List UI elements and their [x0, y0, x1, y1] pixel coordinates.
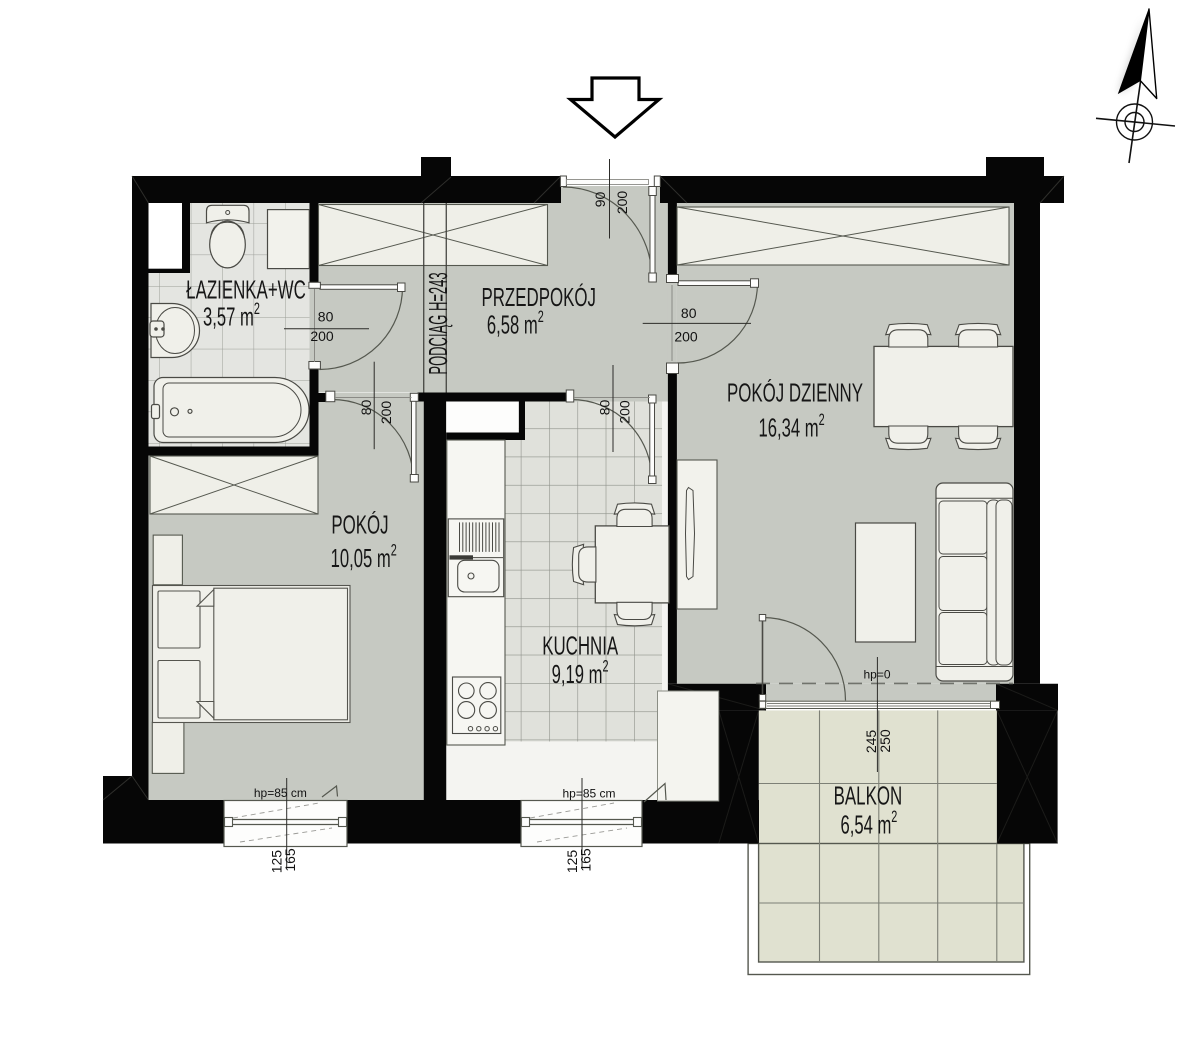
svg-text:POKÓJ: POKÓJ [331, 510, 388, 540]
svg-text:200: 200 [378, 401, 394, 425]
svg-text:PODCIĄG H=243: PODCIĄG H=243 [424, 272, 453, 374]
svg-text:9,19 m2: 9,19 m2 [552, 657, 609, 689]
svg-text:80: 80 [681, 305, 697, 321]
svg-text:ŁAZIENKA+WC: ŁAZIENKA+WC [186, 275, 306, 305]
svg-text:200: 200 [617, 400, 633, 424]
svg-text:POKÓJ DZIENNY: POKÓJ DZIENNY [727, 378, 863, 408]
svg-text:6,54 m2: 6,54 m2 [840, 808, 897, 840]
svg-text:3,57 m2: 3,57 m2 [203, 300, 260, 332]
svg-text:165: 165 [577, 848, 593, 872]
svg-text:KUCHNIA: KUCHNIA [542, 631, 618, 661]
svg-text:80: 80 [358, 400, 374, 416]
svg-text:80: 80 [597, 400, 613, 416]
svg-text:250: 250 [877, 729, 893, 753]
svg-text:16,34 m2: 16,34 m2 [759, 411, 825, 443]
svg-text:165: 165 [282, 848, 298, 872]
svg-text:80: 80 [318, 309, 334, 325]
svg-text:200: 200 [674, 329, 698, 345]
svg-text:hp=85 cm: hp=85 cm [562, 787, 615, 801]
svg-text:hp=0: hp=0 [863, 668, 890, 682]
svg-text:6,58 m2: 6,58 m2 [487, 308, 544, 340]
svg-text:10,05 m2: 10,05 m2 [331, 541, 397, 573]
svg-text:200: 200 [614, 191, 630, 215]
svg-text:200: 200 [310, 328, 334, 344]
svg-text:BALKON: BALKON [834, 781, 903, 811]
svg-text:90: 90 [592, 192, 608, 208]
svg-text:hp=85 cm: hp=85 cm [254, 786, 307, 800]
